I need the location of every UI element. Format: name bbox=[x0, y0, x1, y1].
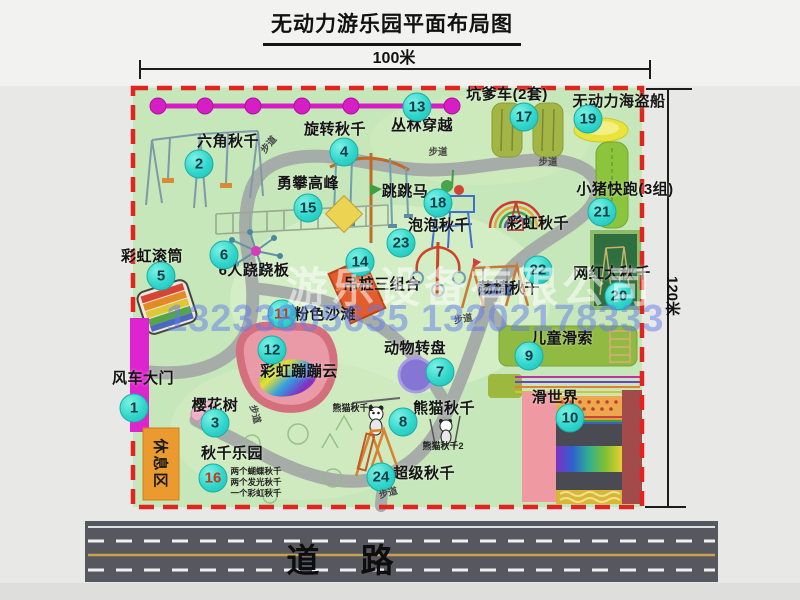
attraction-label: 小猪快跑(3组) bbox=[576, 182, 673, 197]
attraction-badge: 7 bbox=[426, 358, 455, 387]
attraction-label: 熊猫秋千 bbox=[413, 401, 475, 416]
sub-label: 熊猫秋千2 bbox=[422, 442, 463, 451]
attraction-badge: 10 bbox=[556, 404, 585, 433]
attraction-badge: 6 bbox=[210, 241, 239, 270]
attraction-badge: 2 bbox=[185, 150, 214, 179]
watermark-phone: 13233805635 13202178333 bbox=[166, 298, 665, 341]
road-label: 道 路 bbox=[286, 534, 409, 582]
attraction-badge: 19 bbox=[574, 105, 603, 134]
trail-label: 步道 bbox=[428, 144, 447, 158]
height-dimension-label: 120米 bbox=[663, 276, 684, 316]
attraction-label: 六角秋千 bbox=[197, 134, 259, 149]
attraction-badge: 9 bbox=[515, 342, 544, 371]
trail-label: 步道 bbox=[247, 403, 265, 425]
attraction-badge: 16 bbox=[199, 464, 228, 493]
attraction-badge: 3 bbox=[201, 409, 230, 438]
sub-label: 一个彩虹秋千 bbox=[230, 489, 281, 498]
page-title: 无动力游乐园平面布局图 bbox=[263, 8, 521, 46]
width-dimension-label: 100米 bbox=[373, 44, 416, 68]
attraction-badge: 17 bbox=[510, 103, 539, 132]
attraction-label: 彩虹滚筒 bbox=[121, 249, 183, 264]
attraction-label: 秋千乐园 bbox=[201, 446, 263, 461]
trail-label: 步道 bbox=[538, 154, 557, 168]
attraction-badge: 18 bbox=[424, 189, 453, 218]
attraction-label: 旋转秋千 bbox=[304, 122, 366, 137]
attraction-label: 风车大门 bbox=[112, 371, 174, 386]
attraction-label: 勇攀高峰 bbox=[277, 176, 339, 191]
attraction-label: 超级秋千 bbox=[393, 466, 455, 481]
attraction-badge: 4 bbox=[330, 138, 359, 167]
sub-label: 两个发光秋千 bbox=[230, 478, 281, 487]
attraction-badge: 1 bbox=[120, 394, 149, 423]
attraction-label: 坑爹车(2套) bbox=[466, 87, 548, 102]
attraction-label: 彩虹蹦蹦云 bbox=[260, 364, 338, 379]
rest-area-label: 休息区 bbox=[151, 438, 172, 489]
attraction-label: 跳跳马 bbox=[382, 184, 429, 199]
park-map-poster: 风车大门1六角秋千2樱花树3旋转秋千4彩虹滚筒56人跷跷板6动物转盘7熊猫秋千8… bbox=[0, 0, 800, 600]
trail-label: 步道 bbox=[257, 132, 280, 156]
attraction-badge: 15 bbox=[294, 194, 323, 223]
attraction-badge: 5 bbox=[147, 262, 176, 291]
sub-label: 熊猫秋千1 bbox=[332, 404, 373, 413]
attraction-label: 动物转盘 bbox=[384, 341, 446, 356]
sub-label: 两个蝴蝶秋千 bbox=[230, 467, 281, 476]
attraction-label: 泡泡秋千 bbox=[408, 218, 470, 233]
attraction-badge: 21 bbox=[588, 198, 617, 227]
attraction-badge: 13 bbox=[403, 93, 432, 122]
attraction-badge: 8 bbox=[389, 408, 418, 437]
area-label: 彩虹秋千 bbox=[507, 216, 569, 231]
